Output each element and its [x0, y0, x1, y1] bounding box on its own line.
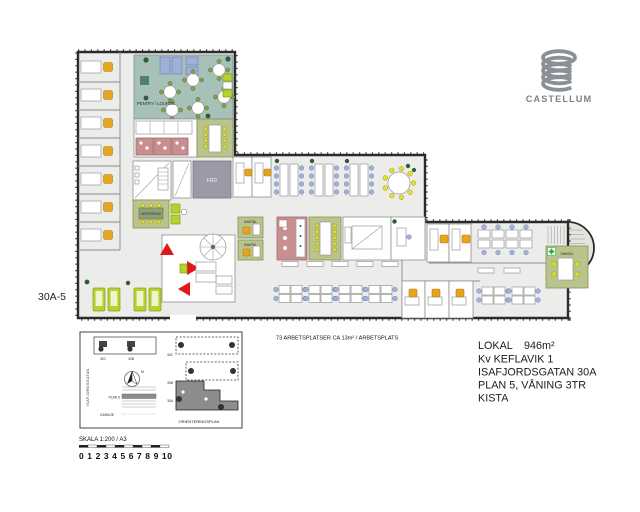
workspaces-note: 73 ARBETSPLATSER CA 13m² / ARBETSPLATS [276, 336, 399, 342]
castellum-logo: CASTELLUM [526, 51, 593, 104]
floor-info: PLAN 5, VÅNING 3TR [478, 379, 586, 392]
meeting-room-top [197, 119, 233, 157]
building-30a-label: 30A [167, 399, 174, 403]
building-32b-label: 32B [128, 357, 135, 361]
first-aid-icon [548, 248, 556, 256]
orienteringsplan-label: ORIENTERINGSPLAN [179, 419, 220, 424]
small-offices-top [233, 157, 271, 197]
samtal-label: SAMTAL [561, 252, 574, 256]
scale-label: SKALA 1:200 / A3 [79, 437, 127, 443]
lounge-chair [134, 288, 146, 311]
address: ISAFJORDSGATAN 30A [478, 367, 597, 379]
plan-code: 30A-5 [38, 291, 66, 303]
pentry-lounge-label: PENTRY / LOUNGE [137, 101, 175, 106]
building-32c-label: 32C [100, 357, 107, 361]
meeting-room-middle [309, 217, 341, 260]
pentry-lounge-area: PENTRY / LOUNGE [134, 55, 235, 121]
frd-label: FRD [207, 178, 218, 184]
lokal-label: LOKAL [478, 340, 513, 352]
lounge-chair [108, 288, 120, 311]
plant-table [140, 76, 149, 85]
street-label: ISAFJORDSGATAN [86, 368, 90, 406]
garage-label: GARAGE [100, 413, 115, 417]
office-desk [81, 173, 113, 185]
floor-plan-svg: PENTRY / LOUNGE [0, 0, 640, 512]
plan5-label: PLAN 5 [109, 396, 121, 400]
office-desk [81, 89, 113, 101]
conference-room-middle [343, 217, 425, 260]
office-desk [81, 145, 113, 157]
office-desk [81, 61, 113, 73]
main-floor-plan: PENTRY / LOUNGE [78, 52, 594, 321]
lounge-chair [149, 288, 161, 311]
plan-sheet: PENTRY / LOUNGE [0, 0, 640, 512]
entrance-opening [170, 315, 196, 321]
round-meeting-table [388, 172, 410, 194]
samtal-label: SAMTAL [244, 220, 257, 224]
office-desk [81, 229, 113, 241]
office-desk [81, 201, 113, 213]
spiral-staircase-icon [200, 234, 226, 260]
scale-numbers: 0 1 2 3 4 5 6 7 8 9 10 [79, 451, 173, 461]
city: KISTA [478, 393, 509, 405]
orientation-map: ISAFJORDSGATAN 32C 32B 30C 30B 30A N PLA… [80, 332, 242, 428]
kitchenette-room [277, 217, 307, 260]
office-desk [81, 117, 113, 129]
tower-samtal-room: SAMTAL [546, 246, 588, 288]
castellum-logo-text: CASTELLUM [526, 94, 593, 104]
scale-bar [79, 445, 169, 448]
info-block: LOKAL 946m² Kv KEFLAVIK 1 ISAFJORDSGATAN… [478, 340, 597, 405]
lounge-chair [93, 288, 105, 311]
building-30b-label: 30B [167, 381, 174, 385]
castellum-logo-icon [543, 51, 575, 90]
kitchen-area [134, 119, 197, 157]
scale-block: SKALA 1:200 / A3 0 1 2 3 4 5 6 7 8 9 10 [79, 437, 173, 461]
frd-storage: FRD [173, 161, 231, 198]
block-name: Kv KEFLAVIK 1 [478, 354, 553, 366]
motesrum-label: MÖTESRUM [141, 212, 160, 216]
area-value: 946m² [524, 340, 555, 352]
north-label: N [141, 369, 144, 374]
building-30c-label: 30C [167, 353, 174, 357]
